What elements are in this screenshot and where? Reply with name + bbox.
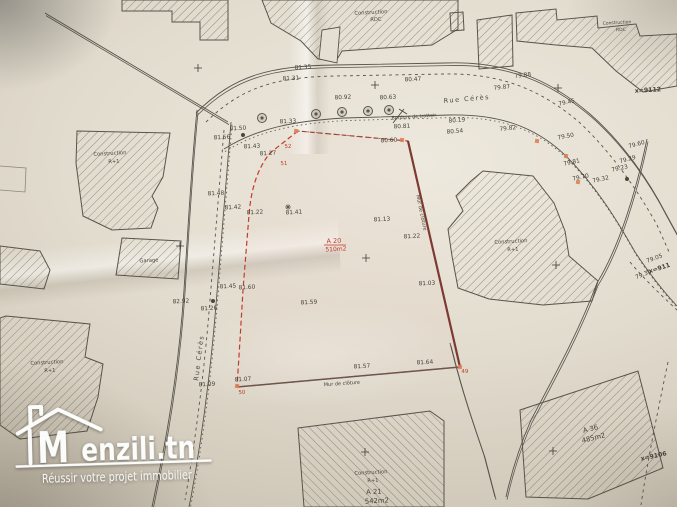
plan-label: 81.43	[243, 144, 260, 151]
plan-label: 81.59	[300, 300, 317, 307]
plan-label: 81.48	[207, 191, 224, 198]
parcel-red-label: 510m2	[325, 245, 347, 253]
plan-label: 81.35	[294, 65, 311, 72]
plan-label: 81.42	[224, 205, 241, 212]
plan-label: Bordure de trottoir	[391, 112, 436, 121]
parcel-red-label: 50	[238, 390, 246, 396]
plan-label: 80.92	[334, 95, 351, 102]
plan-label: 79.45	[558, 98, 576, 107]
plan-label: A 21	[366, 488, 382, 497]
plan-label: R+1	[44, 368, 56, 375]
plan-label: 79.82	[499, 125, 516, 133]
plan-label: 81.09	[198, 382, 215, 389]
plan-label: 81.41	[285, 210, 302, 217]
plan-label: 81.13	[373, 217, 390, 224]
plan-label: 81.64	[416, 360, 433, 367]
plan-label: 81.22	[403, 234, 420, 241]
plan-label: 79.60	[628, 140, 646, 150]
plan-label: 81.26	[200, 306, 217, 313]
plan-label: x=9112	[635, 86, 662, 94]
plan-label: 80.54	[446, 128, 463, 135]
parcel-red-label: 49	[461, 369, 469, 375]
plan-label: Garage	[139, 258, 158, 265]
parcel-red-label: 52	[284, 144, 291, 150]
plan-label: Rue Cérès	[192, 334, 206, 381]
parcel-red-label: A 20	[326, 237, 341, 246]
plan-label: 80.60	[380, 138, 397, 145]
plan-label: 81.31	[282, 76, 299, 83]
plan-label: 79.81	[563, 158, 581, 167]
parcel-red-label: 51	[280, 161, 287, 167]
plan-label: 79.32	[592, 175, 610, 184]
plan-label: 81.27	[259, 151, 276, 158]
plan-label: 79.87	[493, 84, 510, 92]
survey-plan-photo: 81.3581.3180.4780.9280.6379.8879.8779.45…	[0, 0, 677, 507]
plan-label: 81.07	[234, 377, 251, 384]
plan-label: 81.56	[213, 135, 230, 142]
plan-label: 81.60	[238, 285, 255, 292]
plan-label: Rue Cérès	[443, 93, 490, 105]
plan-label: 82.92	[172, 299, 189, 306]
plan-label: 81.03	[418, 281, 435, 288]
plan-label: 80.63	[379, 95, 396, 102]
plan-label: 80.47	[404, 77, 421, 84]
menzili-logo: M enzili.tn Réussir votre projet immobil…	[12, 389, 221, 494]
plan-label: 81.33	[279, 119, 296, 126]
plan-label: R+1	[108, 159, 120, 166]
plan-label: 542m2	[365, 496, 389, 505]
house-wall-icon	[30, 430, 31, 463]
plan-label: 79.23	[611, 164, 629, 173]
plan-label: 81.22	[246, 210, 263, 217]
plan-label: 80.19	[448, 117, 465, 124]
plan-label: 81.50	[229, 126, 246, 133]
plan-label: 81.57	[353, 364, 370, 371]
plan-label: RDC	[616, 27, 626, 34]
plan-label: R+1	[507, 247, 519, 254]
brand-tagline: Réussir votre projet immobilier	[42, 468, 193, 486]
plan-label: 81.45	[219, 284, 236, 291]
parcel-boundary	[237, 131, 460, 387]
plan-label: 79.30	[635, 269, 653, 281]
plan-label: Mur de clôture	[324, 379, 361, 389]
plan-label: 79.50	[557, 133, 575, 142]
plan-label: RDC	[370, 17, 382, 24]
plan-label: 79.05	[646, 253, 664, 264]
plan-label: 80.81	[393, 124, 410, 131]
plan-label: R+1	[367, 478, 379, 485]
